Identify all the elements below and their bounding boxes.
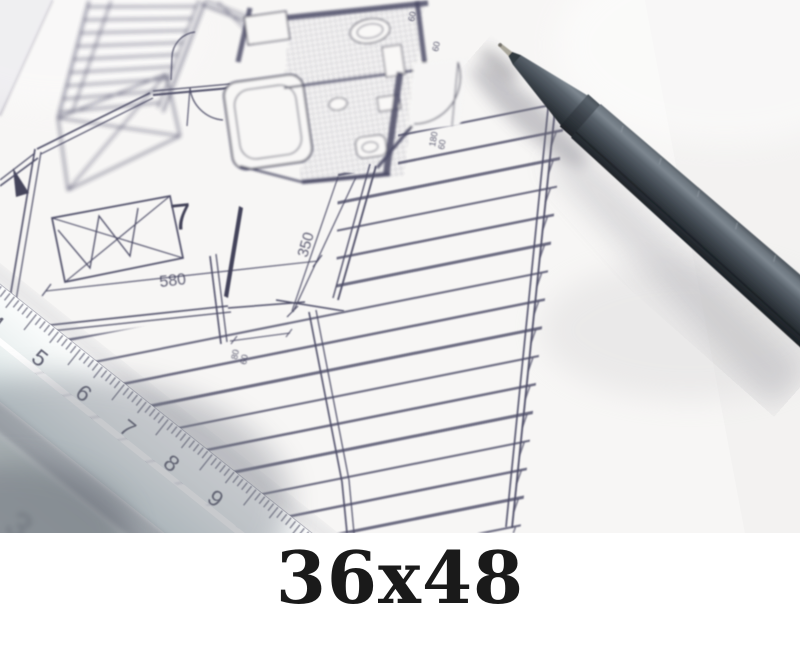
dimension-label: 60 xyxy=(406,11,418,23)
bathtub xyxy=(222,73,313,171)
caption-band: 36x48 xyxy=(0,533,800,670)
room-number-label: 7 xyxy=(169,195,194,238)
size-label: 36x48 xyxy=(276,542,524,614)
blueprint-photo: 7 5803506060180608060 456789 3 xyxy=(0,0,800,533)
dimension-label: 60 xyxy=(436,139,448,151)
washer xyxy=(244,11,289,45)
product-image: 7 5803506060180608060 456789 3 xyxy=(0,0,800,670)
dimension-label: 580 xyxy=(159,271,188,291)
door-opening xyxy=(408,58,468,130)
dimension-label: 60 xyxy=(430,41,442,53)
stair-tread xyxy=(87,6,197,7)
dimension-label: 60 xyxy=(238,354,250,366)
photo-canvas: 7 5803506060180608060 456789 3 xyxy=(0,0,800,533)
toilet xyxy=(355,134,388,159)
